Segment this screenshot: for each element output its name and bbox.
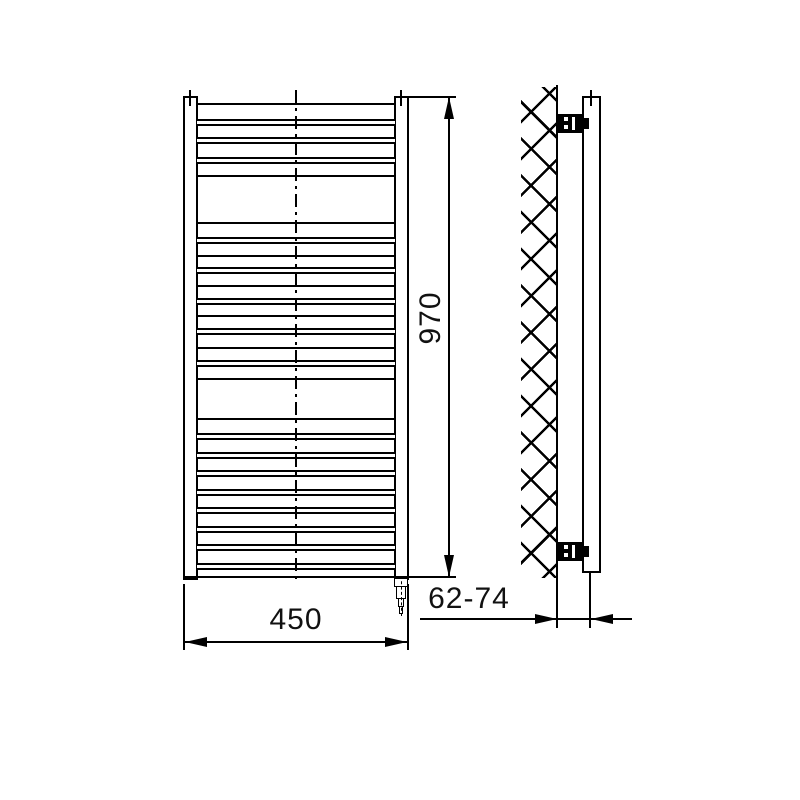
tube-top-tick bbox=[590, 90, 592, 106]
bracket-body bbox=[558, 542, 583, 561]
radiator-tube-profile bbox=[582, 96, 601, 573]
bracket-slit bbox=[564, 545, 568, 549]
bracket-slit bbox=[572, 117, 575, 130]
dim-wall-arrow-left-icon bbox=[591, 614, 613, 624]
mounting-bracket-top bbox=[558, 114, 590, 133]
bracket-clamp bbox=[583, 546, 589, 557]
dim-wall-label: 62-74 bbox=[389, 582, 549, 616]
bracket-slit bbox=[564, 117, 568, 121]
bracket-slit bbox=[572, 545, 575, 558]
side-view: 62-74 bbox=[0, 0, 800, 800]
bracket-body bbox=[558, 114, 583, 133]
technical-drawing: 970 450 bbox=[0, 0, 800, 800]
wall-hatch bbox=[521, 87, 557, 578]
bracket-clamp bbox=[583, 118, 589, 129]
mounting-bracket-bottom bbox=[558, 542, 590, 561]
bracket-slit bbox=[564, 553, 568, 557]
bracket-slit bbox=[564, 125, 568, 129]
